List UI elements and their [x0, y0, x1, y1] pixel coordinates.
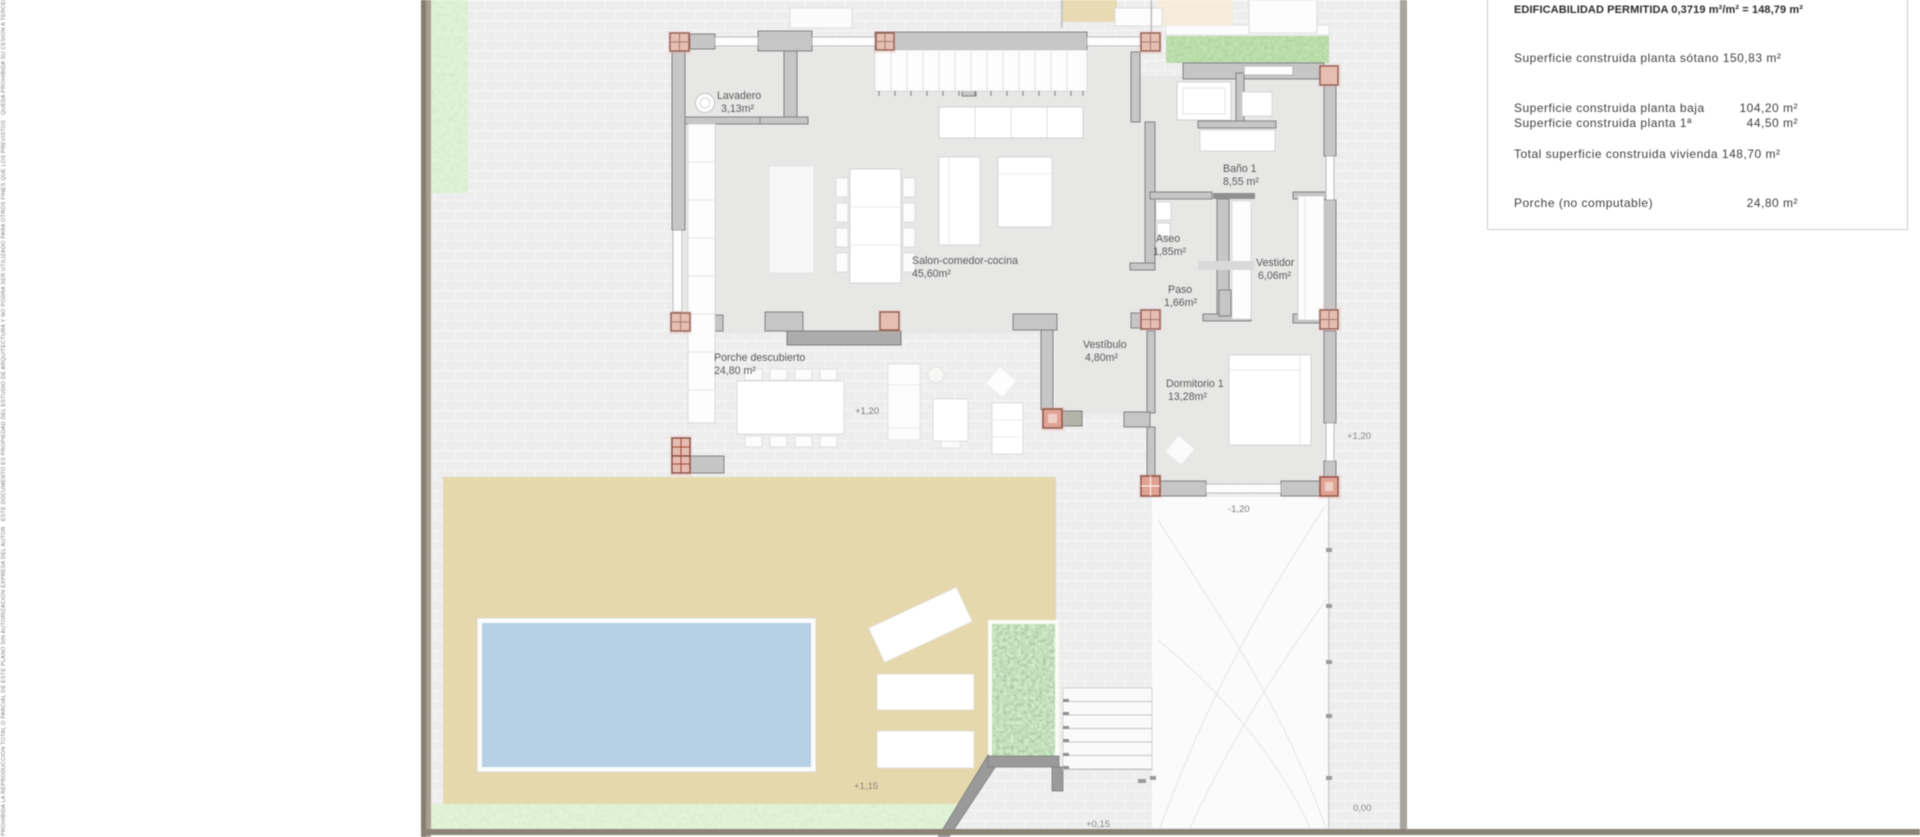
svg-text:Porche descubierto: Porche descubierto [714, 352, 805, 364]
svg-text:0,00: 0,00 [1353, 803, 1372, 814]
svg-text:24,80 m²: 24,80 m² [714, 365, 756, 377]
svg-text:8,55 m²: 8,55 m² [1223, 176, 1259, 188]
svg-text:1,66m²: 1,66m² [1164, 297, 1197, 309]
svg-text:Lavadero: Lavadero [717, 90, 761, 102]
svg-text:+1,20: +1,20 [1347, 431, 1371, 442]
svg-text:Baño 1: Baño 1 [1223, 163, 1257, 175]
svg-text:6,06m²: 6,06m² [1258, 270, 1291, 282]
svg-text:+0,15: +0,15 [1086, 819, 1110, 830]
svg-text:45,60m²: 45,60m² [912, 268, 951, 280]
svg-text:Salon-comedor-cocina: Salon-comedor-cocina [912, 255, 1018, 267]
svg-text:Aseo: Aseo [1156, 233, 1180, 245]
svg-text:Paso: Paso [1168, 284, 1192, 296]
svg-text:1,85m²: 1,85m² [1153, 246, 1186, 258]
svg-text:4,80m²: 4,80m² [1085, 352, 1118, 364]
svg-text:-1,20: -1,20 [1228, 504, 1250, 515]
svg-text:3,13m²: 3,13m² [721, 103, 754, 115]
svg-text:Vestíbulo: Vestíbulo [1083, 339, 1127, 351]
svg-text:Vestidor: Vestidor [1256, 257, 1295, 269]
svg-text:13,28m²: 13,28m² [1168, 391, 1207, 403]
svg-text:+1,20: +1,20 [855, 406, 879, 417]
svg-text:Dormitorio 1: Dormitorio 1 [1166, 378, 1224, 390]
svg-text:+1,15: +1,15 [854, 781, 878, 792]
